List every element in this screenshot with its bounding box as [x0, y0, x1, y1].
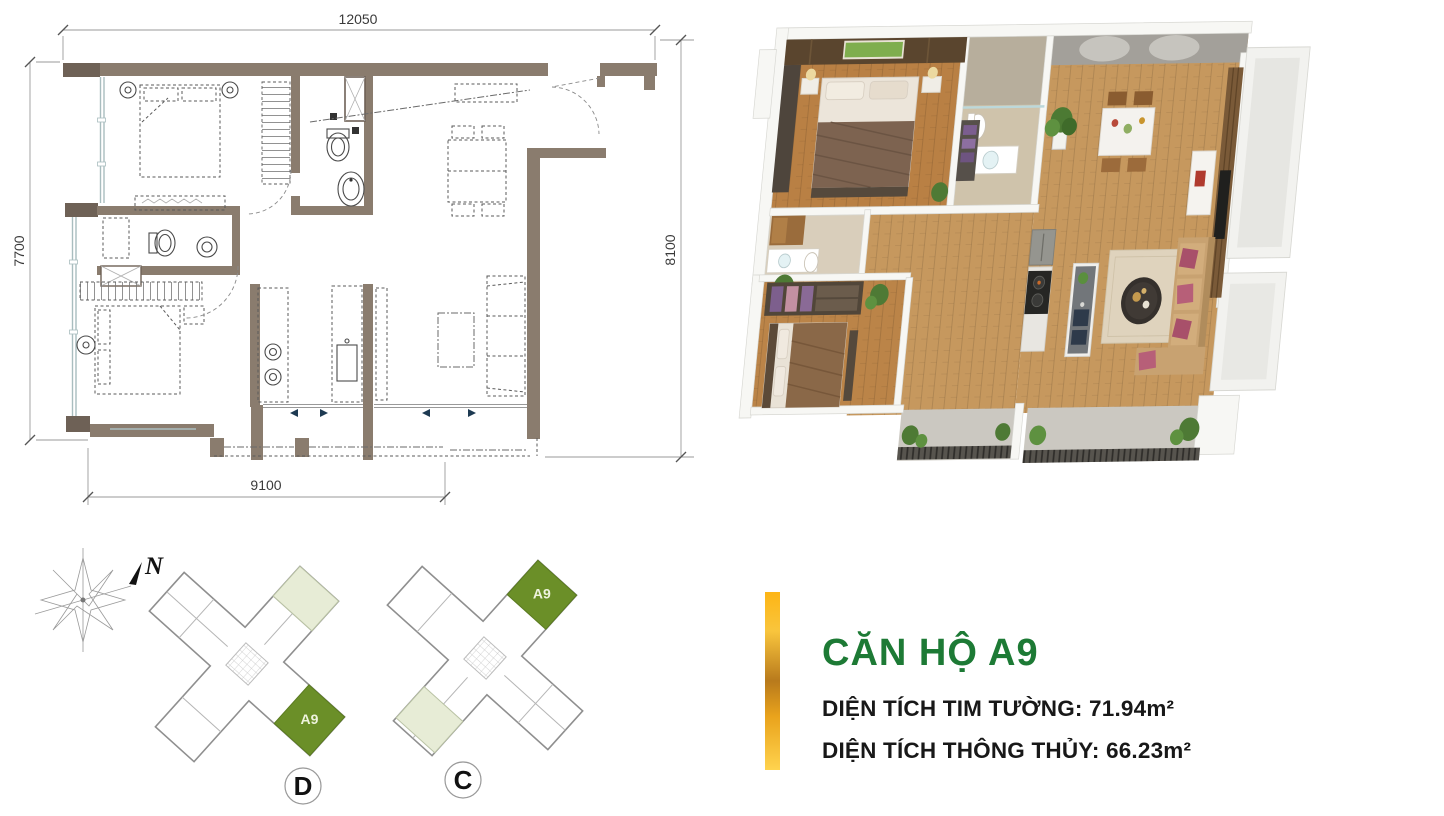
site-plan: N A9 D [15, 538, 665, 816]
apartment-3d-render [700, 0, 1444, 556]
building-c-a9-label: A9 [533, 586, 551, 602]
dim-left-label: 7700 [11, 235, 27, 266]
compass: N [35, 548, 164, 652]
render-scene [719, 20, 1313, 467]
building-c-footprint: A9 [332, 538, 637, 811]
second-bedroom-furniture [77, 282, 204, 394]
building-c-badge: C [445, 762, 481, 798]
area-thong-thuy: DIỆN TÍCH THÔNG THỦY: 66.23m² [822, 738, 1191, 764]
building-d-a9-label: A9 [300, 711, 318, 727]
area-thong-thuy-value: 66.23m² [1106, 738, 1191, 763]
dimension-top: 12050 [58, 11, 660, 60]
second-bathroom-fixtures [103, 218, 217, 258]
unit-title: CĂN HỘ A9 [822, 632, 1039, 675]
floor-plan-2d: 12050 7700 8100 9100 [0, 0, 720, 540]
area-tim-tuong-value: 71.94m² [1089, 696, 1174, 721]
building-d-label: D [294, 771, 313, 801]
building-c-label: C [454, 765, 473, 795]
area-tim-tuong-label: DIỆN TÍCH TIM TƯỜNG: [822, 696, 1083, 721]
dim-bottom-label: 9100 [250, 477, 281, 493]
dimension-bottom: 9100 [83, 448, 450, 505]
unit-info-panel: CĂN HỘ A9 DIỆN TÍCH TIM TƯỜNG: 71.94m² D… [765, 592, 1365, 802]
dim-right-label: 8100 [662, 234, 678, 265]
master-bedroom-furniture [120, 82, 290, 210]
poster-canvas: 12050 7700 8100 9100 [0, 0, 1444, 816]
area-thong-thuy-label: DIỆN TÍCH THÔNG THỦY: [822, 738, 1100, 763]
north-label: N [144, 553, 164, 580]
living-room-furniture [438, 276, 525, 396]
plan-walls [63, 63, 657, 460]
master-bathroom-fixtures [327, 113, 364, 206]
north-arrow: N [129, 553, 164, 585]
feature-wall [1048, 33, 1248, 65]
area-tim-tuong: DIỆN TÍCH TIM TƯỜNG: 71.94m² [822, 696, 1174, 722]
building-d-badge: D [285, 768, 321, 804]
building-d-footprint: A9 [94, 538, 399, 816]
dimension-right: 8100 [545, 35, 694, 462]
dim-top-label: 12050 [339, 11, 378, 27]
plan-windows [70, 77, 197, 429]
accent-bar [765, 592, 780, 770]
